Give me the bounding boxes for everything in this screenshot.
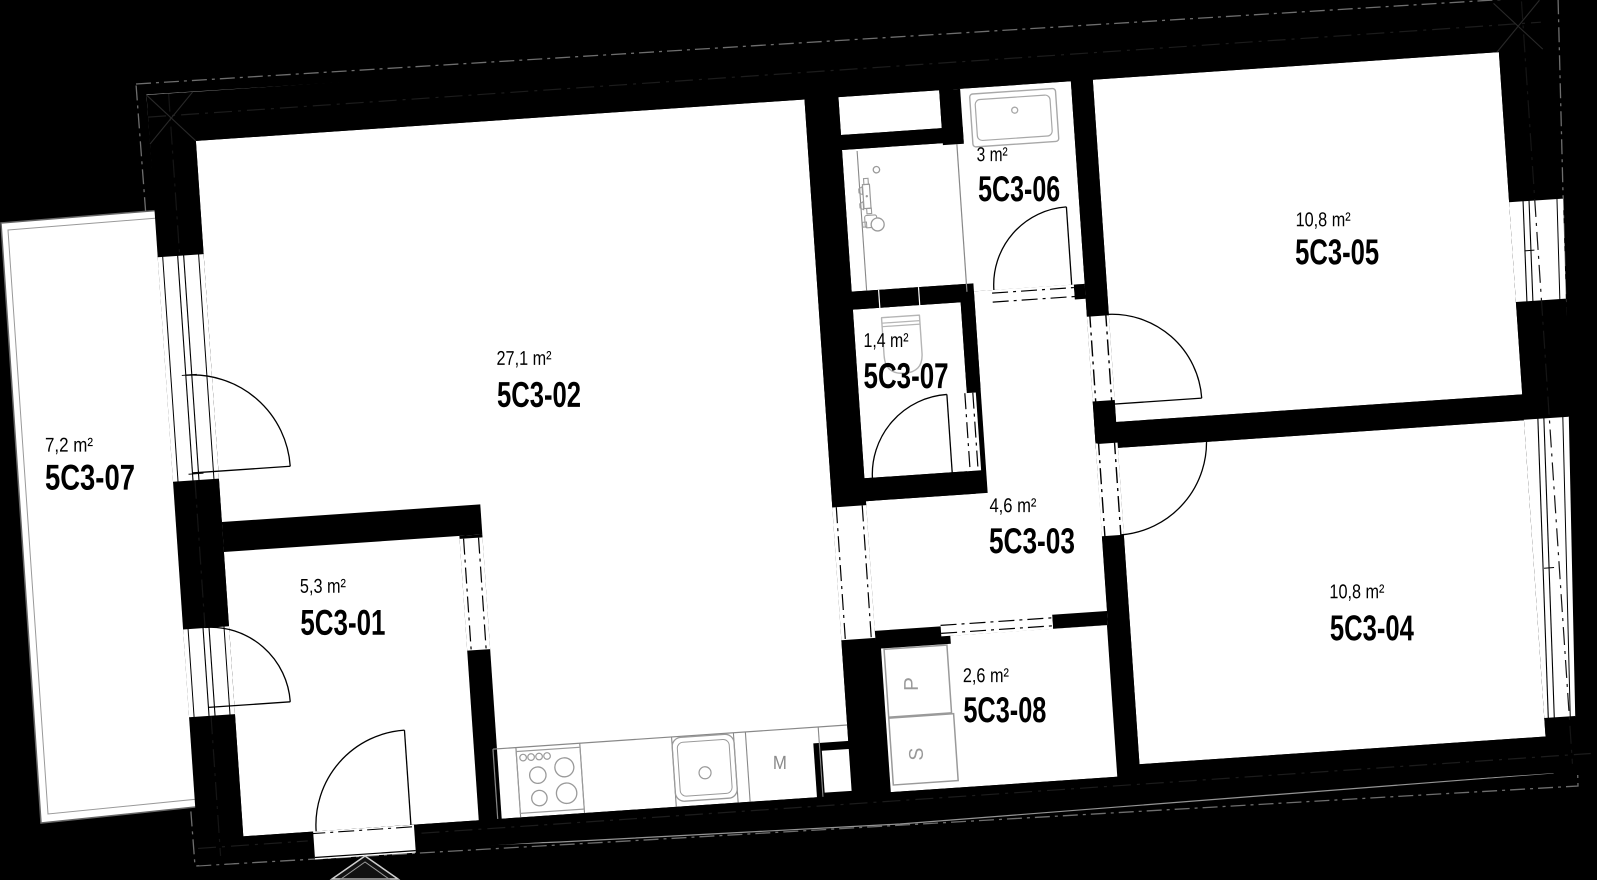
svg-text:5C3-01: 5C3-01: [300, 602, 385, 643]
svg-text:2,6 m²: 2,6 m²: [963, 665, 1009, 687]
svg-text:7,2 m²: 7,2 m²: [45, 435, 93, 457]
svg-text:P: P: [901, 677, 923, 691]
svg-text:4,6 m²: 4,6 m²: [989, 495, 1036, 517]
svg-text:5C3-07: 5C3-07: [45, 457, 135, 498]
svg-text:5C3-07: 5C3-07: [864, 355, 949, 396]
svg-text:1,4 m²: 1,4 m²: [864, 330, 909, 352]
svg-text:M: M: [773, 753, 787, 774]
svg-text:5C3-04: 5C3-04: [1330, 607, 1414, 648]
svg-text:S: S: [906, 748, 928, 761]
svg-text:5C3-03: 5C3-03: [989, 520, 1075, 561]
svg-text:27,1 m²: 27,1 m²: [497, 348, 552, 370]
svg-text:5C3-02: 5C3-02: [497, 374, 581, 415]
svg-text:5C3-08: 5C3-08: [963, 689, 1046, 730]
svg-text:5C3-06: 5C3-06: [978, 168, 1060, 209]
svg-text:10,8 m²: 10,8 m²: [1296, 209, 1351, 231]
svg-text:3 m²: 3 m²: [977, 144, 1008, 166]
svg-text:10,8 m²: 10,8 m²: [1329, 581, 1384, 603]
svg-text:5,3 m²: 5,3 m²: [300, 576, 346, 598]
svg-text:5C3-05: 5C3-05: [1295, 231, 1379, 272]
